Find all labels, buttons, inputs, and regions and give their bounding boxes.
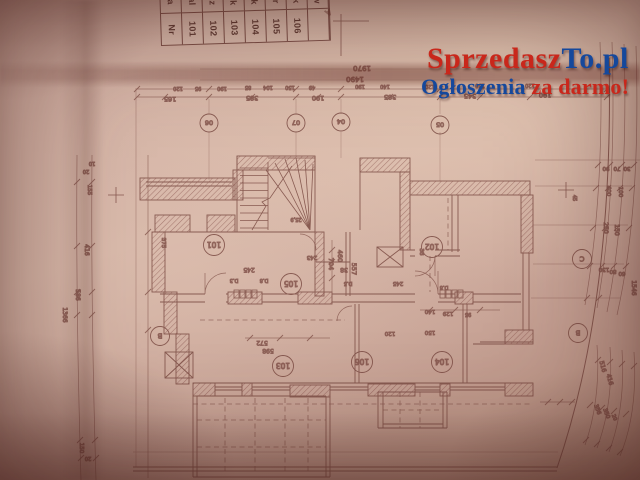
dim-label: 140 xyxy=(380,83,390,89)
room-table-cell: Pok xyxy=(223,0,244,11)
dim-label: 416 xyxy=(605,373,615,386)
dim-label: 1490 xyxy=(346,75,364,83)
axis-circle-label: 05 xyxy=(436,121,444,129)
dim-label: 557 xyxy=(350,263,358,275)
dim-label: 45 xyxy=(571,195,577,201)
watermark-tagline: Ogłoszenia za darmo! xyxy=(421,74,629,100)
room-table-column: NaNr xyxy=(160,0,183,45)
dim-label: 375 xyxy=(160,238,166,249)
room-number-circle-label: 102 xyxy=(425,242,440,251)
room-table-cell: Pok xyxy=(244,0,265,10)
dashed-lines xyxy=(193,198,530,474)
room-table-cell: 106 xyxy=(287,8,308,41)
dim-label: 572 xyxy=(256,339,268,346)
dim-label: 49 xyxy=(309,84,315,90)
dim-label: 80 xyxy=(609,268,616,274)
dim-label: D.8 xyxy=(260,277,269,283)
room-table-cell: 101 xyxy=(182,12,203,45)
axis-circle-label: 06 xyxy=(205,119,213,127)
watermark-tagline-second: za darmo! xyxy=(531,74,629,99)
room-table-cell: Hal xyxy=(181,0,202,12)
room-table-cell: Na xyxy=(160,0,181,13)
room-table-cell: 104 xyxy=(245,10,266,43)
dim-label: D.5 xyxy=(344,280,353,286)
dim-label: 150 xyxy=(613,224,620,236)
room-table-column: Pok104 xyxy=(244,0,267,42)
dim-label: 1970 xyxy=(353,64,371,72)
room-number-circle-label: 104 xyxy=(435,357,450,366)
dim-label: 30 xyxy=(623,165,630,171)
watermark-site-first: Sprzedasz xyxy=(427,42,562,75)
dim-label: 130 xyxy=(598,266,609,272)
dim-label: 60 xyxy=(618,270,625,276)
sheet-border xyxy=(133,58,609,471)
dim-label: 516 xyxy=(598,360,608,373)
room-table: NaNrHal101Łaz102Pok103Pok104Gar105Pok106… xyxy=(159,0,331,46)
room-table-column: Pok103 xyxy=(223,0,246,43)
dim-label: 586 xyxy=(74,289,81,301)
dim-label: 140 xyxy=(424,308,435,314)
room-table-cell: 102 xyxy=(203,11,224,44)
room-number-circle-label: 103 xyxy=(276,361,291,370)
floorplan-photo: 1970149012095190851041504919014012015012… xyxy=(0,0,640,480)
dim-label: 95 xyxy=(465,311,471,317)
dim-label: 165 xyxy=(164,95,176,103)
room-table-column: Pok106 xyxy=(286,0,309,41)
dim-label: 250 xyxy=(602,222,609,234)
wall-lines xyxy=(146,156,533,477)
dim-label: 243 xyxy=(306,254,317,260)
dim-label: 129 xyxy=(442,310,453,316)
room-number-circle-label: 106 xyxy=(355,357,370,366)
dim-label: 704 xyxy=(327,258,335,270)
room-table-cell: Łaz xyxy=(202,0,223,12)
dim-label: 150 xyxy=(285,84,295,90)
dim-label: 598 xyxy=(262,347,274,354)
axis-letter-circle-label: C xyxy=(579,254,584,262)
dim-label: 245 xyxy=(392,280,403,286)
dim-label: 155 xyxy=(86,185,92,196)
dim-label: 70 xyxy=(613,165,620,171)
dim-label: 385 xyxy=(246,94,258,102)
room-table-cell: 103 xyxy=(224,10,245,43)
dim-label: 150 xyxy=(424,329,435,335)
room-number-circle-label: 105 xyxy=(284,279,299,288)
dim-label: 190 xyxy=(312,94,324,102)
room-table-cell: Nr xyxy=(161,12,182,45)
dim-label: D.3 xyxy=(230,277,239,283)
axis-letter-circle-label: B xyxy=(575,328,580,336)
dim-label: 85 xyxy=(245,84,251,90)
dim-label: 460 xyxy=(336,250,344,262)
room-table-cell xyxy=(308,8,329,41)
dim-label: 190 xyxy=(217,85,227,91)
dim-label: 400 xyxy=(605,186,611,197)
room-table-column: Łaz102 xyxy=(202,0,225,44)
dim-label: 90 xyxy=(602,165,609,171)
dim-label: 245 xyxy=(243,266,255,273)
dim-label: 190 xyxy=(355,83,365,89)
dim-label: 95 xyxy=(195,85,201,91)
axis-circle-label: 07 xyxy=(292,119,300,127)
dim-label: 20 xyxy=(610,414,618,422)
watermark-site-second: To.pl xyxy=(562,42,629,75)
dim-label: 104 xyxy=(263,84,273,90)
dim-label: 120 xyxy=(173,85,183,91)
dim-label: 120 xyxy=(384,330,395,336)
axis-circle-label: 04 xyxy=(337,118,345,126)
dim-label: 20 xyxy=(83,168,89,174)
dim-label: 1366 xyxy=(61,307,68,322)
dim-label: 1546 xyxy=(630,280,637,295)
room-table-column: Hal101 xyxy=(181,0,204,44)
hatched-walls xyxy=(140,156,533,397)
watermark-tagline-first: Ogłoszenia xyxy=(421,74,526,99)
room-table-column: Pow xyxy=(307,0,330,40)
dim-label: 20 xyxy=(85,455,91,461)
dim-label: 10 xyxy=(89,160,95,166)
dim-label: 416 xyxy=(83,244,90,256)
dim-label: 350 xyxy=(601,408,610,420)
dim-label: 25,9 xyxy=(290,216,301,222)
dim-label: 38 xyxy=(340,266,348,273)
dim-label: 150 xyxy=(78,443,84,454)
dim-label: 100 xyxy=(617,187,623,198)
room-number-circle-label: 101 xyxy=(207,240,222,249)
room-table-column: Gar105 xyxy=(265,0,288,42)
axis-letter-circle-label: B xyxy=(157,331,162,339)
room-table-cell: 105 xyxy=(266,9,287,42)
dim-label: 385 xyxy=(384,93,396,101)
watermark-site-name: SprzedaszTo.pl xyxy=(427,42,629,76)
dim-label: D.8 xyxy=(440,284,449,290)
